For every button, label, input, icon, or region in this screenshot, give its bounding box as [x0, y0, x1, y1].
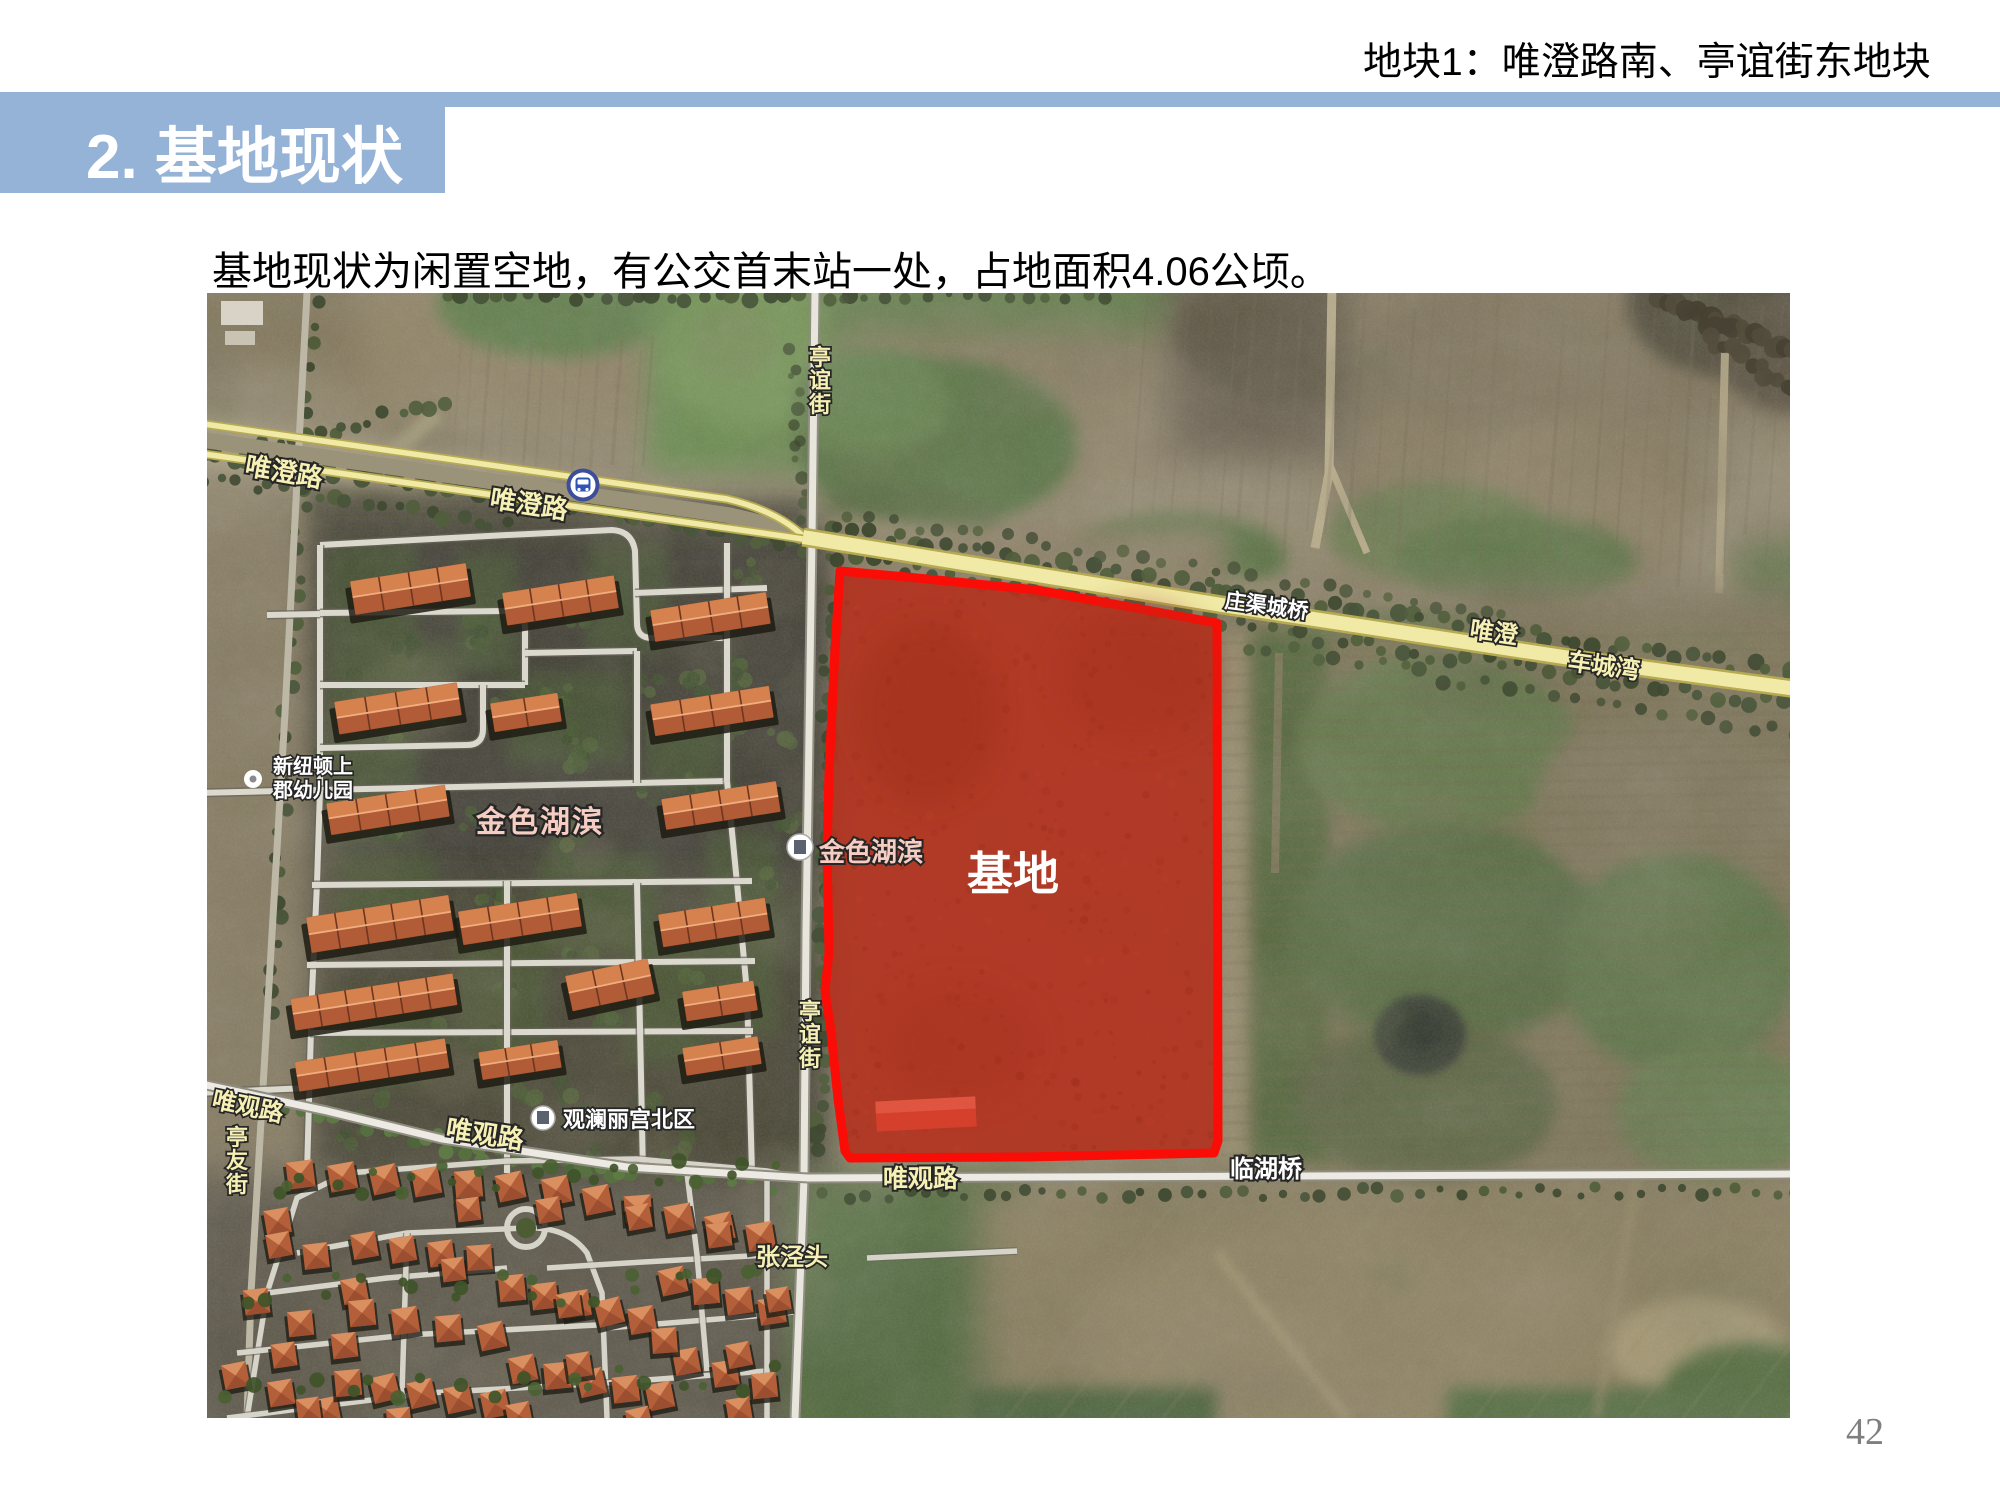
svg-text:谊: 谊	[809, 368, 831, 393]
svg-text:临湖桥: 临湖桥	[1230, 1155, 1303, 1183]
svg-text:街: 街	[225, 1172, 248, 1197]
svg-text:街: 街	[808, 392, 831, 417]
svg-text:街: 街	[798, 1046, 821, 1071]
svg-text:谊: 谊	[799, 1022, 821, 1047]
svg-text:亭: 亭	[226, 1125, 248, 1150]
svg-text:友: 友	[226, 1148, 248, 1173]
svg-text:观澜丽宫北区: 观澜丽宫北区	[563, 1107, 695, 1132]
svg-text:唯观路: 唯观路	[883, 1165, 959, 1193]
svg-text:亭: 亭	[799, 999, 821, 1024]
svg-text:金色湖滨: 金色湖滨	[475, 805, 604, 839]
svg-text:金色湖滨: 金色湖滨	[818, 837, 923, 867]
svg-text:郡幼儿园: 郡幼儿园	[272, 778, 353, 802]
svg-text:亭: 亭	[809, 345, 831, 370]
svg-text:新纽顿上: 新纽顿上	[273, 754, 353, 778]
svg-text:张泾头: 张泾头	[756, 1244, 828, 1271]
svg-text:基地: 基地	[967, 848, 1059, 900]
